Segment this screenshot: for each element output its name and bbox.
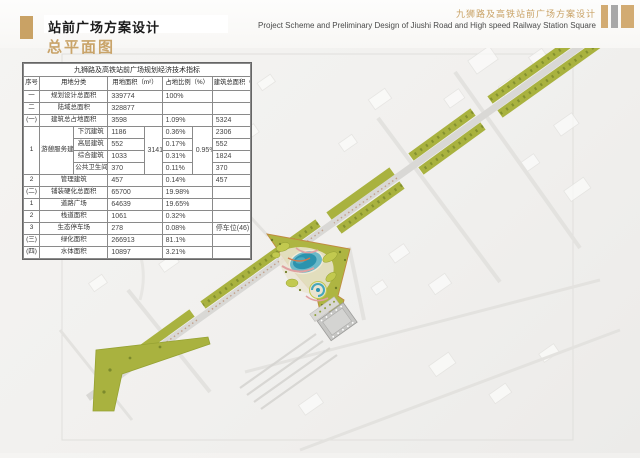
row-label: 陆域总面积 <box>40 103 108 115</box>
col-header-ratio: 占地比例（%） <box>162 77 212 91</box>
accent-square <box>20 16 33 39</box>
row-total <box>212 187 250 199</box>
row-label: 道路广场 <box>40 199 108 211</box>
sub-pct: 0.11% <box>162 163 192 175</box>
corner-bars <box>601 5 634 28</box>
row-total <box>212 91 250 103</box>
table-row: (二) 铺装硬化总面积 65700 19.98% <box>24 187 251 199</box>
row-area: 339774 <box>108 91 162 103</box>
row-index: 一 <box>24 91 40 103</box>
sub-area: 1033 <box>108 151 144 163</box>
table-row: 2 栈道面积 1061 0.32% <box>24 211 251 223</box>
table-title-row: 九狮路及高铁站前广场规划经济技术指标 <box>24 64 251 77</box>
project-title-en: Project Scheme and Preliminary Design of… <box>176 21 596 30</box>
row-total: 5324 <box>212 115 250 127</box>
row-index: 2 <box>24 211 40 223</box>
row-total <box>212 199 250 211</box>
table-title: 九狮路及高铁站前广场规划经济技术指标 <box>24 64 251 77</box>
sub-pct: 0.36% <box>162 127 192 139</box>
row-area: 278 <box>108 223 162 235</box>
row-pct <box>162 103 212 115</box>
col-header-category: 用地分类 <box>40 77 108 91</box>
col-header-area: 用地面积（m²） <box>108 77 162 91</box>
row-total <box>212 103 250 115</box>
row-area: 3598 <box>108 115 162 127</box>
sub-area: 1186 <box>108 127 144 139</box>
row-pct: 19.65% <box>162 199 212 211</box>
row-pct: 0.32% <box>162 211 212 223</box>
row-index: (一) <box>24 115 40 127</box>
sub-pct: 0.31% <box>162 151 192 163</box>
row-pct: 81.1% <box>162 235 212 247</box>
row-total <box>212 247 250 259</box>
row-label: 生态停车场 <box>40 223 108 235</box>
header-right: 九狮路及高铁站前广场方案设计 Project Scheme and Prelim… <box>176 7 596 30</box>
table-row: 二 陆域总面积 328877 <box>24 103 251 115</box>
row-pct: 100% <box>162 91 212 103</box>
row-area: 10897 <box>108 247 162 259</box>
row-label: 规划设计总面积 <box>40 91 108 103</box>
group-pct-sum: 0.95% <box>192 127 212 175</box>
group-label: 游憩服务建筑 <box>40 127 74 175</box>
row-index: 2 <box>24 175 40 187</box>
row-index: 3 <box>24 223 40 235</box>
row-pct: 19.98% <box>162 187 212 199</box>
row-area: 266913 <box>108 235 162 247</box>
sub-label: 下沉建筑 <box>74 127 108 139</box>
corner-bar-tan-2 <box>621 5 634 28</box>
row-pct: 0.08% <box>162 223 212 235</box>
group-area-sum: 3141 <box>144 127 162 175</box>
col-header-total: 建筑总面积（m²） <box>212 77 250 91</box>
row-label: 栈道面积 <box>40 211 108 223</box>
row-label: 铺装硬化总面积 <box>40 187 108 199</box>
table-row: 2 管理建筑 457 0.14% 457 <box>24 175 251 187</box>
row-label: 管理建筑 <box>40 175 108 187</box>
table-row: 3 生态停车场 278 0.08% 停车位(46) <box>24 223 251 235</box>
corner-bar-tan-1 <box>601 5 608 28</box>
row-index: 1 <box>24 127 40 175</box>
page-subtitle: 总平面图 <box>47 36 115 57</box>
row-index: (四) <box>24 247 40 259</box>
row-area: 1061 <box>108 211 162 223</box>
row-area: 64639 <box>108 199 162 211</box>
sub-total: 370 <box>212 163 250 175</box>
row-total: 457 <box>212 175 250 187</box>
row-total: 停车位(46) <box>212 223 250 235</box>
sub-total: 552 <box>212 139 250 151</box>
sub-pct: 0.17% <box>162 139 192 151</box>
railway-tracks <box>240 334 337 409</box>
row-total <box>212 211 250 223</box>
row-index: (二) <box>24 187 40 199</box>
sub-label: 公共卫生间 <box>74 163 108 175</box>
sub-label: 高层建筑 <box>74 139 108 151</box>
col-header-index: 序号 <box>24 77 40 91</box>
row-pct: 0.14% <box>162 175 212 187</box>
row-pct: 1.09% <box>162 115 212 127</box>
row-total <box>212 235 250 247</box>
row-label: 水体面积 <box>40 247 108 259</box>
row-area: 65700 <box>108 187 162 199</box>
table-row: 一 规划设计总面积 339774 100% <box>24 91 251 103</box>
sub-total: 1824 <box>212 151 250 163</box>
sub-total: 2306 <box>212 127 250 139</box>
sub-area: 370 <box>108 163 144 175</box>
table-row-group: 1 游憩服务建筑 下沉建筑 1186 3141 0.36% 0.95% 2306 <box>24 127 251 139</box>
row-pct: 3.21% <box>162 247 212 259</box>
table-row: (四) 水体面积 10897 3.21% <box>24 247 251 259</box>
page-title: 站前广场方案设计 <box>48 17 160 36</box>
row-area: 328877 <box>108 103 162 115</box>
row-index: 1 <box>24 199 40 211</box>
station-building <box>310 294 357 341</box>
row-index: 二 <box>24 103 40 115</box>
table-header-row: 序号 用地分类 用地面积（m²） 占地比例（%） 建筑总面积（m²） <box>24 77 251 91</box>
sub-label: 综合建筑 <box>74 151 108 163</box>
corner-bar-gray <box>611 5 618 28</box>
row-index: (三) <box>24 235 40 247</box>
green-wedge <box>93 337 210 411</box>
table-row: (一) 建筑总占地面积 3598 1.09% 5324 <box>24 115 251 127</box>
row-area: 457 <box>108 175 162 187</box>
indicator-table: 九狮路及高铁站前广场规划经济技术指标 序号 用地分类 用地面积（m²） 占地比例… <box>22 62 252 260</box>
sub-area: 552 <box>108 139 144 151</box>
park-spiral-plaza <box>310 282 327 299</box>
table-row: 1 道路广场 64639 19.65% <box>24 199 251 211</box>
row-label: 建筑总占地面积 <box>40 115 108 127</box>
project-title-cn: 九狮路及高铁站前广场方案设计 <box>176 7 596 20</box>
row-label: 绿化面积 <box>40 235 108 247</box>
table-row: (三) 绿化面积 266913 81.1% <box>24 235 251 247</box>
